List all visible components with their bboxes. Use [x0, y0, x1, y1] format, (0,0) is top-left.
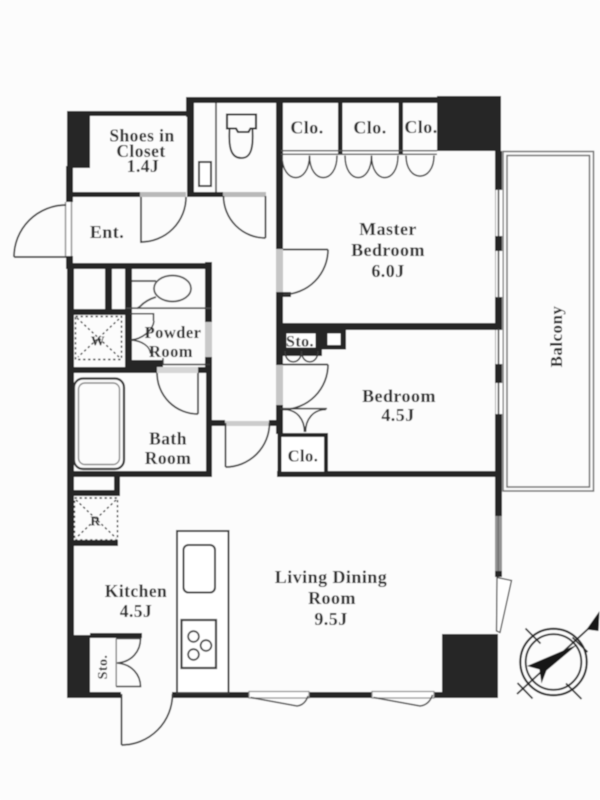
svg-text:9.5J: 9.5J: [314, 609, 347, 629]
svg-text:Master: Master: [359, 219, 417, 239]
svg-text:1.4J: 1.4J: [127, 156, 159, 176]
svg-text:Kitchen: Kitchen: [105, 581, 167, 601]
svg-text:Room: Room: [308, 588, 356, 608]
svg-text:Powder: Powder: [145, 323, 202, 342]
svg-text:Bedroom: Bedroom: [362, 386, 436, 406]
svg-text:Clo.: Clo.: [404, 117, 437, 137]
svg-text:Living Dining: Living Dining: [275, 567, 387, 587]
svg-text:Sto.: Sto.: [96, 655, 111, 680]
svg-text:Clo.: Clo.: [353, 118, 386, 138]
svg-text:Room: Room: [145, 448, 192, 468]
svg-text:4.5J: 4.5J: [381, 405, 414, 425]
svg-text:Balcony: Balcony: [547, 306, 566, 368]
svg-text:Ent.: Ent.: [90, 222, 124, 242]
svg-text:W: W: [91, 335, 105, 350]
svg-text:R: R: [90, 515, 101, 530]
svg-text:Clo.: Clo.: [290, 118, 323, 138]
svg-text:6.0J: 6.0J: [371, 261, 404, 281]
svg-text:Bedroom: Bedroom: [351, 240, 425, 260]
svg-text:Sto.: Sto.: [286, 334, 314, 351]
svg-text:Bath: Bath: [149, 429, 187, 449]
svg-text:Room: Room: [149, 342, 193, 361]
svg-text:4.5J: 4.5J: [120, 601, 152, 621]
svg-text:Clo.: Clo.: [288, 447, 319, 466]
